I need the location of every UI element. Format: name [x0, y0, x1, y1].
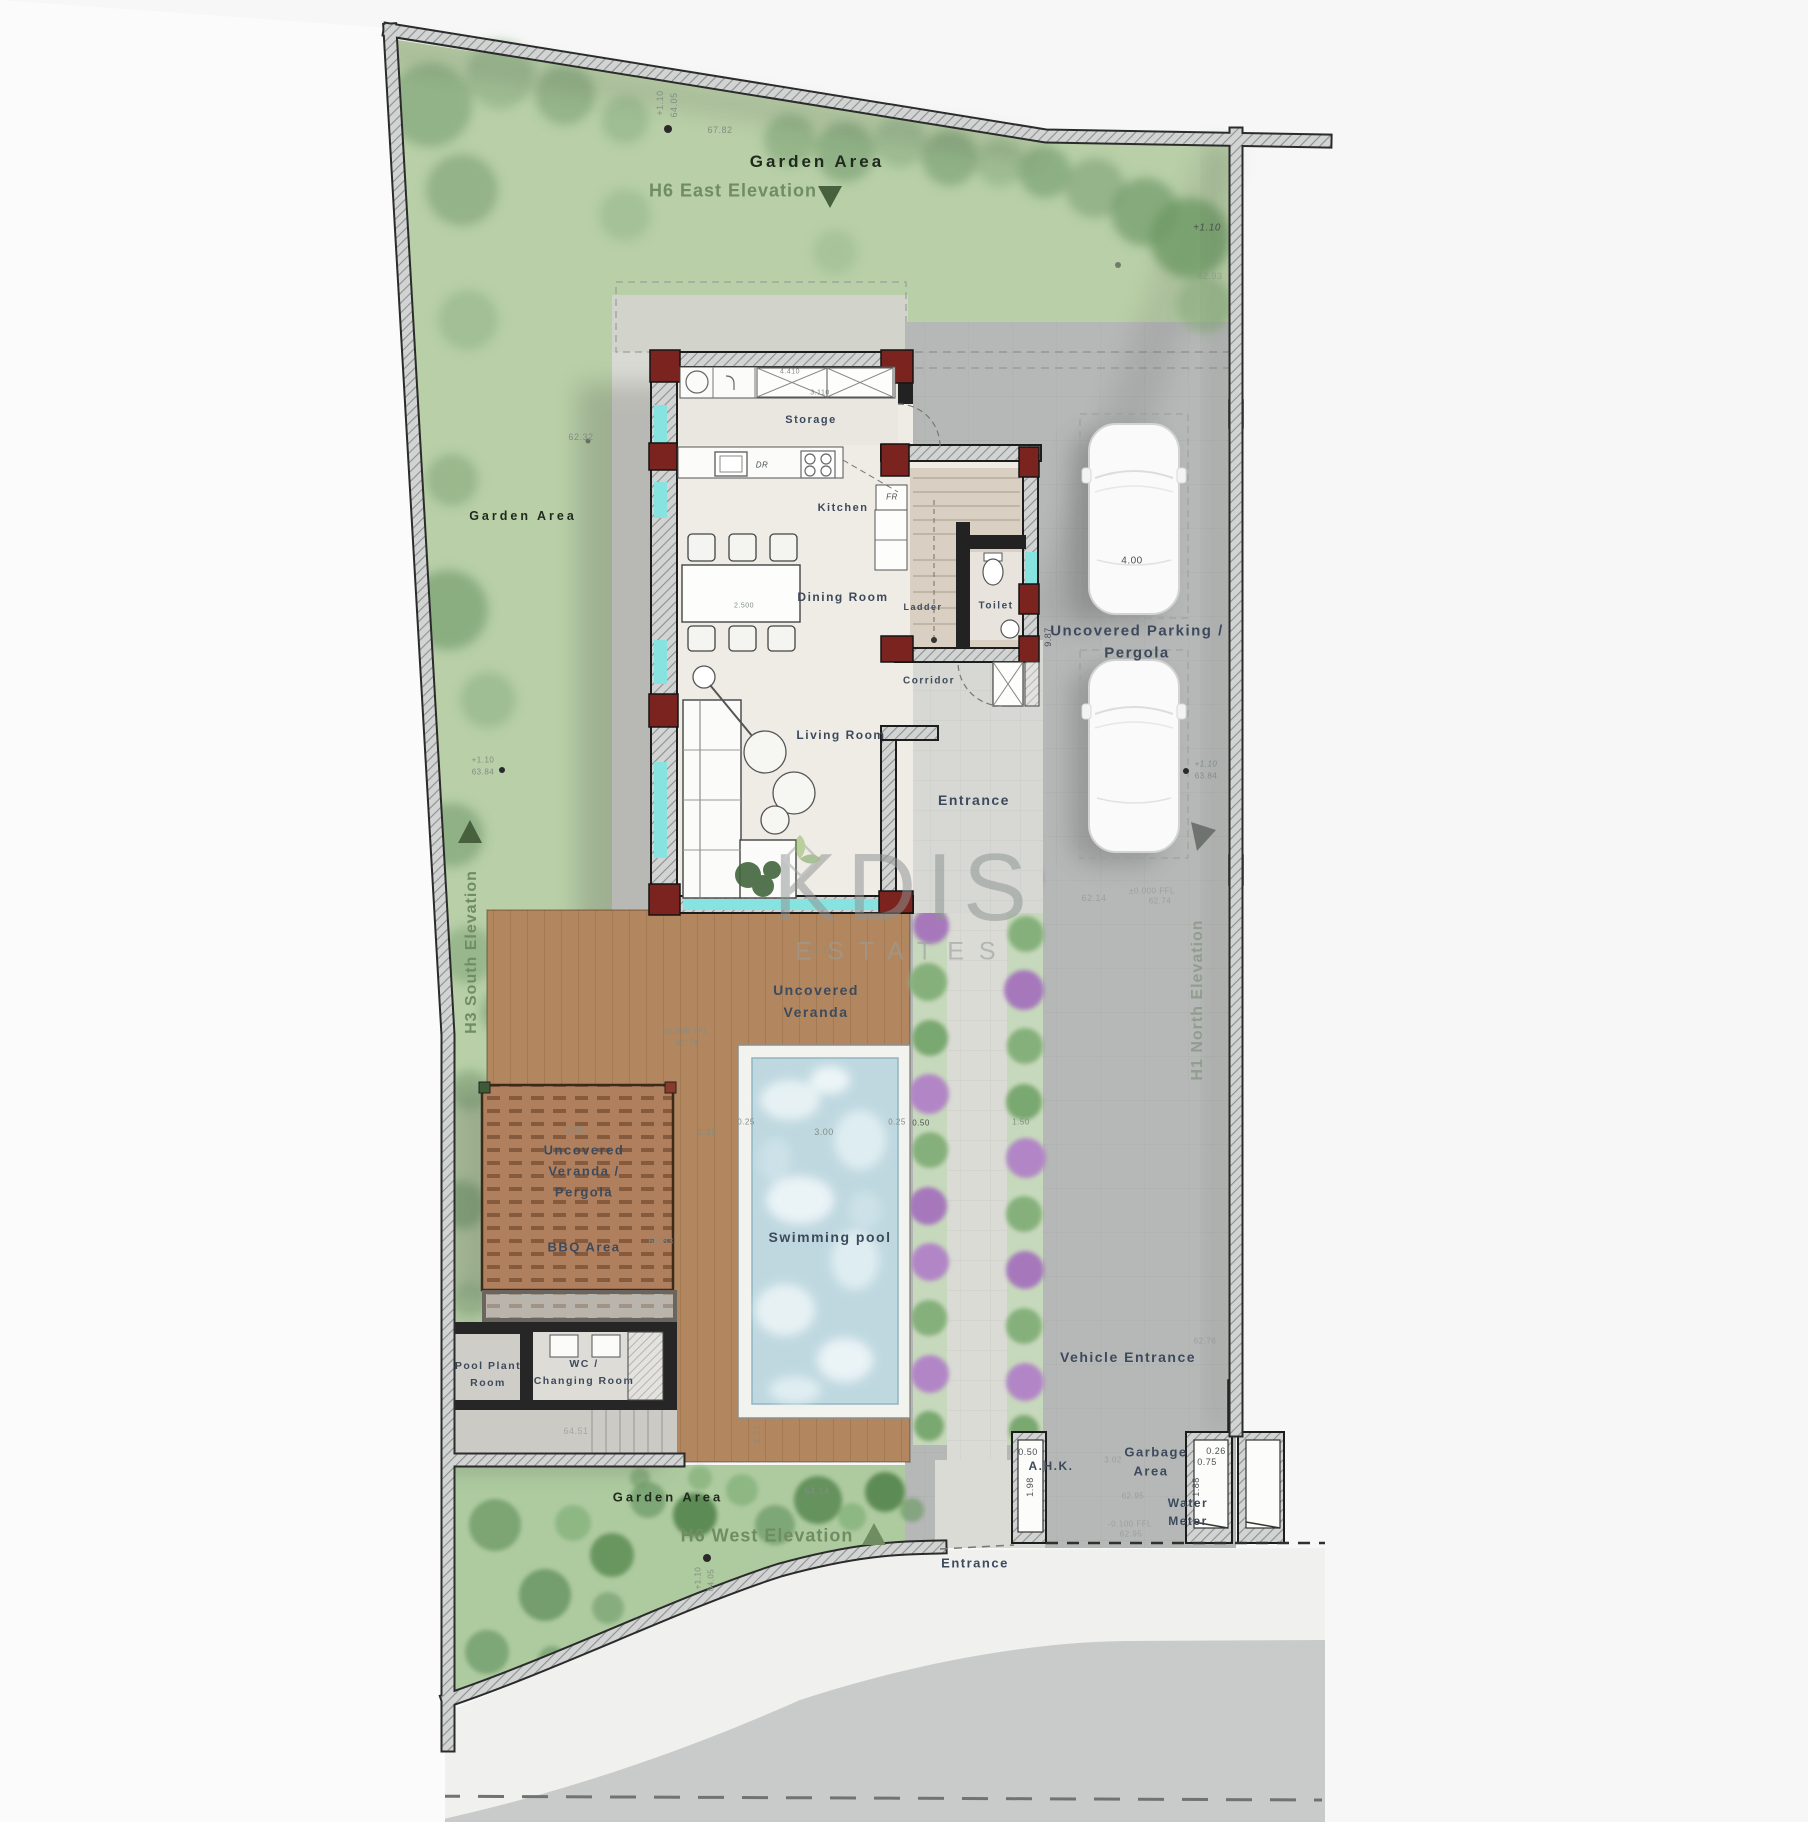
watermark-dis: DIS — [847, 833, 1037, 943]
dim-table: 2.500 — [734, 603, 754, 610]
dim-tr-plus: +1.10 — [1193, 223, 1221, 234]
dim-wm-a: 0.26 — [1206, 1446, 1226, 1456]
ladder-label: Ladder — [903, 602, 942, 612]
dim-302: 3.02 — [1104, 1456, 1122, 1465]
dim-mr-level: 63.84 — [1195, 772, 1218, 781]
page-margin — [0, 0, 445, 1822]
south-elevation-label: H3 South Elevation — [463, 870, 481, 1034]
dim-vehicle-level: 62.76 — [1194, 1337, 1217, 1346]
dim-ml-plus: +1.10 — [472, 756, 495, 765]
pool-house — [440, 1322, 677, 1467]
dim-121: 1.21 — [752, 1424, 762, 1444]
pergola-label-3: Pergola — [555, 1185, 613, 1200]
kitchen-label: Kitchen — [818, 502, 869, 514]
water-meter-label-1: Water — [1168, 1496, 1208, 1510]
dim-bottom-plus: +1.10 — [694, 1567, 703, 1590]
dim-bottom-level2: 64.05 — [707, 1569, 716, 1592]
site-plan: K DIS ESTATES Garden Area H6 East Elevat… — [0, 0, 1808, 1822]
dr-label: DR — [756, 461, 769, 470]
dim-050: 0.50 — [912, 1119, 930, 1128]
bbq-area-label: BBQ Area — [548, 1240, 621, 1255]
parking-label-1: Uncovered Parking / — [1050, 623, 1224, 640]
dim-storage-a: 4.410 — [780, 369, 800, 376]
vehicle-entrance-label: Vehicle Entrance — [1060, 1349, 1196, 1365]
veranda-label-2: Veranda — [784, 1004, 849, 1020]
dining-room-label: Dining Room — [797, 590, 888, 604]
swimming-pool-label: Swimming pool — [769, 1229, 892, 1245]
garden-area-top-label: Garden Area — [750, 152, 884, 172]
dim-ramp-level: 64.51 — [563, 1426, 588, 1436]
dim-car-width: 4.00 — [1121, 556, 1142, 567]
dim-top-length: 67.82 — [707, 125, 732, 135]
dim-025b: 0.25 — [888, 1118, 906, 1127]
corridor-label: Corridor — [903, 676, 955, 687]
storage-label: Storage — [785, 414, 836, 426]
north-elevation-label: H1 North Elevation — [1189, 919, 1207, 1080]
entrance-bottom-label: Entrance — [941, 1556, 1009, 1571]
entrance-porch-label: Entrance — [938, 792, 1010, 808]
dim-garbage-ffl: -0.100 FFL — [1108, 1520, 1152, 1529]
west-elevation-label: H6 West Elevation — [681, 1526, 854, 1547]
pergola-label-2: Veranda / — [548, 1164, 619, 1179]
dim-wm-b: 0.75 — [1197, 1457, 1217, 1467]
wc-label-2: Changing Room — [534, 1375, 635, 1387]
toilet-label: Toilet — [979, 601, 1014, 612]
watermark-logo: K DIS — [773, 833, 1037, 943]
living-room-label: Living Room — [796, 728, 885, 742]
east-elevation-label: H6 East Elevation — [649, 181, 817, 202]
roof-strip — [612, 295, 908, 352]
dining-furniture — [682, 534, 800, 651]
car-2 — [1082, 660, 1186, 852]
parking-label-2: Pergola — [1104, 645, 1170, 662]
dim-stair-depth: 9.87 — [1043, 627, 1053, 647]
dim-park-ffl: ±0.000 FFL — [1129, 887, 1175, 896]
dim-deck-level: 62.31 — [807, 945, 832, 955]
dim-135: 1.35 — [697, 1127, 717, 1137]
dim-wm-height: 1.88 — [1191, 1477, 1201, 1497]
dim-top-plus: +1.10 — [655, 90, 665, 115]
dim-garbage-level: 62.95 — [1122, 1492, 1145, 1501]
garden-area-left-label: Garden Area — [469, 509, 577, 523]
pool-plant-label-2: Room — [470, 1377, 506, 1389]
pool-plant-label-1: Pool Plant — [455, 1360, 521, 1372]
garden-area-bottom-label: Garden Area — [613, 1490, 724, 1505]
dim-pergola-width: 3.98 — [565, 1125, 585, 1135]
dim-deck-ffl-level: 62.74 — [676, 1039, 699, 1048]
dim-150: 1.50 — [1012, 1118, 1030, 1127]
dim-tr-level: 62.93 — [1197, 271, 1222, 281]
dim-ml-level: 63.84 — [472, 768, 495, 777]
dim-storage-b: 3.110 — [810, 390, 830, 397]
dim-park-level: 62.14 — [1081, 893, 1106, 903]
dim-top-level: 64.05 — [669, 92, 679, 117]
veranda-label-1: Uncovered — [773, 982, 859, 998]
garbage-label-1: Garbage — [1124, 1445, 1187, 1460]
pergola-bbq — [479, 1082, 677, 1322]
dim-bbq-level: 63.83 — [648, 1236, 673, 1246]
dim-ahk-height: 1.98 — [1025, 1477, 1035, 1497]
wc-label-1: WC / — [569, 1358, 598, 1370]
dim-left-level: 62.32 — [568, 432, 593, 442]
watermark-leaf-icon — [777, 833, 823, 885]
dim-bottom-level: 64.14 — [804, 1486, 829, 1496]
ahk-label: A.H.K. — [1029, 1459, 1074, 1473]
dim-mr-plus: +1.10 — [1195, 760, 1218, 769]
dim-025a: 0.25 — [737, 1118, 755, 1127]
pergola-label-1: Uncovered — [544, 1143, 625, 1158]
dim-park-ffl-level: 62.74 — [1149, 897, 1172, 906]
dim-garbage-level2: 62.95 — [1120, 1530, 1143, 1539]
water-meter-label-2: Meter — [1168, 1514, 1208, 1528]
garbage-label-2: Area — [1134, 1464, 1169, 1479]
dim-pool-width: 3.00 — [814, 1127, 834, 1137]
fridge-label: FR — [886, 493, 898, 502]
dim-ahk-width: 0.50 — [1018, 1447, 1038, 1457]
dim-deck-ffl: ±0.000 FFL — [663, 1027, 709, 1036]
car-1 — [1082, 424, 1186, 614]
